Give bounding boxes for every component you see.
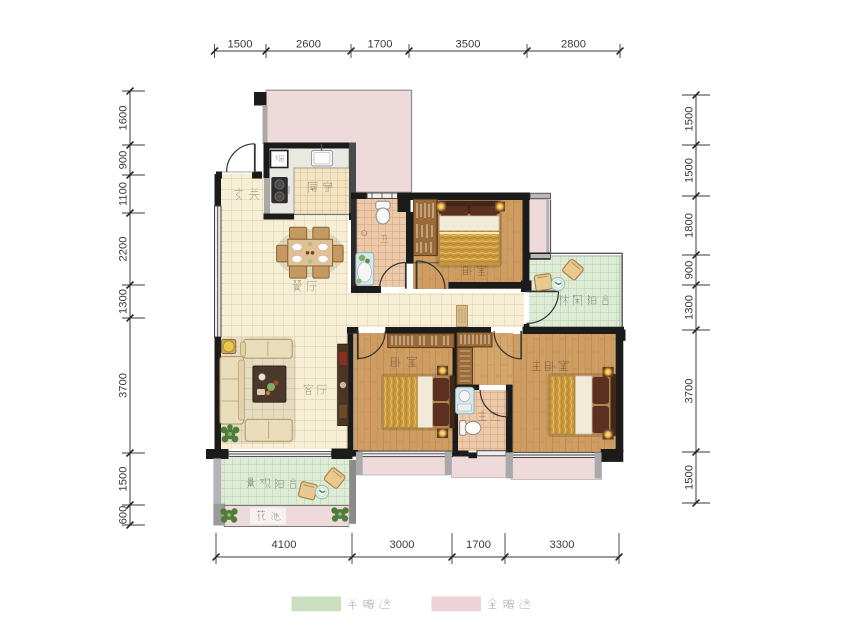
svg-text:1500: 1500 xyxy=(118,467,130,492)
svg-text:2600: 2600 xyxy=(296,39,321,51)
svg-text:1700: 1700 xyxy=(368,39,393,51)
svg-text:1300: 1300 xyxy=(684,295,696,320)
svg-text:900: 900 xyxy=(684,261,696,280)
svg-text:1500: 1500 xyxy=(684,158,696,183)
svg-text:3700: 3700 xyxy=(118,373,130,398)
svg-text:3000: 3000 xyxy=(390,539,415,551)
svg-text:3700: 3700 xyxy=(684,379,696,404)
svg-text:900: 900 xyxy=(118,151,130,170)
svg-text:1100: 1100 xyxy=(118,182,130,206)
svg-text:1300: 1300 xyxy=(118,289,130,314)
svg-text:3300: 3300 xyxy=(550,539,575,551)
svg-text:3500: 3500 xyxy=(456,39,481,51)
svg-text:2800: 2800 xyxy=(561,39,586,51)
svg-text:1800: 1800 xyxy=(684,213,696,238)
svg-text:4100: 4100 xyxy=(272,539,297,551)
svg-text:1500: 1500 xyxy=(228,39,253,51)
svg-text:1700: 1700 xyxy=(466,539,491,551)
svg-text:1600: 1600 xyxy=(118,106,130,131)
svg-text:600: 600 xyxy=(118,506,130,525)
svg-text:2200: 2200 xyxy=(118,237,130,262)
svg-text:1500: 1500 xyxy=(684,465,696,490)
svg-text:1500: 1500 xyxy=(684,107,696,132)
